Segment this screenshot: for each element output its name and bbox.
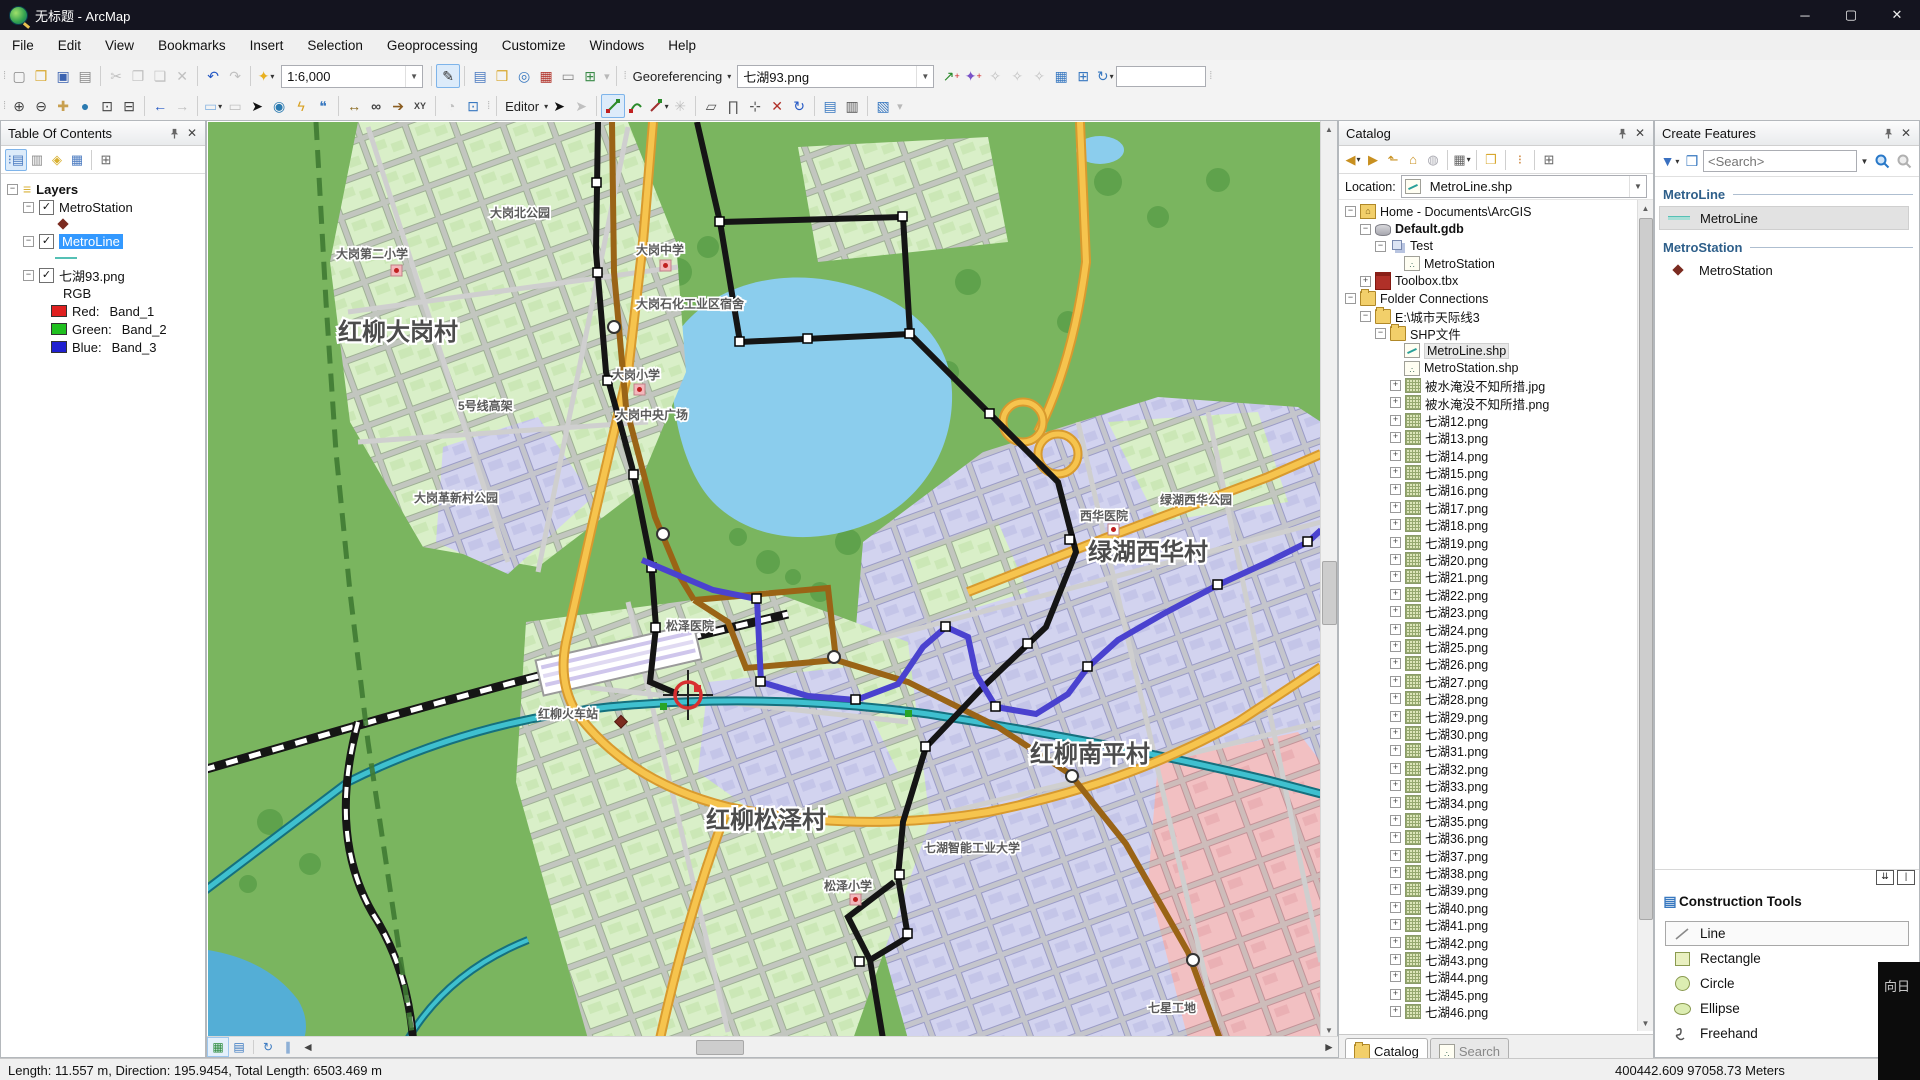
fixed-zoom-out-icon[interactable]: ⊟ xyxy=(118,95,140,117)
add-data-icon[interactable]: ✦▾ xyxy=(255,65,277,87)
go-to-xy-icon[interactable]: XY xyxy=(409,95,431,117)
catalog-item-label[interactable]: 七湖27.png xyxy=(1425,672,1488,691)
catalog-item-label[interactable]: 七湖40.png xyxy=(1425,898,1488,917)
split-tool-icon[interactable]: ✕ xyxy=(766,95,788,117)
table-of-contents-icon[interactable]: ▤ xyxy=(469,65,491,87)
catalog-item-label[interactable]: 七湖30.png xyxy=(1425,724,1488,743)
catalog-row[interactable]: +七湖42.png xyxy=(1339,933,1653,950)
expand-icon[interactable]: + xyxy=(1390,832,1401,843)
catalog-options-icon[interactable]: ⊞ xyxy=(1539,150,1559,170)
construction-tool-line[interactable]: Line xyxy=(1665,921,1909,946)
layer-row-raster[interactable]: − ✓ 七湖93.png xyxy=(23,266,205,284)
expand-icon[interactable]: + xyxy=(1390,797,1401,808)
open-icon[interactable]: ❒ xyxy=(30,65,52,87)
catalog-row[interactable]: +被水淹没不知所措.jpg xyxy=(1339,377,1653,394)
map-horizontal-scrollbar[interactable] xyxy=(318,1039,1319,1055)
catalog-item-label[interactable]: 七湖44.png xyxy=(1425,967,1488,986)
catalog-row[interactable]: MetroStation xyxy=(1339,255,1653,272)
catalog-row[interactable]: −SHP文件 xyxy=(1339,325,1653,342)
georeferencing-menu[interactable]: Georeferencing xyxy=(629,69,727,84)
template-group-header[interactable]: MetroStation xyxy=(1663,240,1913,255)
measure-icon[interactable]: ↔ xyxy=(343,95,365,117)
find-route-icon[interactable]: ➔ xyxy=(387,95,409,117)
expand-icon[interactable]: + xyxy=(1390,624,1401,635)
construction-tool-ellipse[interactable]: Ellipse xyxy=(1665,996,1909,1021)
catalog-row[interactable]: +七湖29.png xyxy=(1339,707,1653,724)
cf-splitter[interactable]: ⇊ | xyxy=(1655,869,1919,885)
trace-tool-icon[interactable]: ✳ xyxy=(669,95,691,117)
catalog-item-label[interactable]: 七湖39.png xyxy=(1425,880,1488,899)
catalog-item-label[interactable]: 七湖33.png xyxy=(1425,776,1488,795)
expand-icon[interactable]: + xyxy=(1390,1006,1401,1017)
catalog-item-label[interactable]: 七湖22.png xyxy=(1425,585,1488,604)
collapse-icon[interactable]: − xyxy=(23,236,34,247)
catalog-row[interactable]: +七湖20.png xyxy=(1339,551,1653,568)
vertical-scroll-thumb[interactable] xyxy=(1322,561,1337,625)
expand-icon[interactable]: + xyxy=(1390,728,1401,739)
catalog-window-icon[interactable]: ❒ xyxy=(491,65,513,87)
layer-row-metrostation[interactable]: − ✓ MetroStation xyxy=(23,198,205,216)
template-item-metroline[interactable]: MetroLine xyxy=(1659,206,1909,230)
collapse-icon[interactable]: − xyxy=(7,184,18,195)
band-row[interactable]: Green: Band_2 xyxy=(51,320,205,338)
expand-icon[interactable]: − xyxy=(1345,206,1356,217)
catalog-row[interactable]: MetroLine.shp xyxy=(1339,342,1653,359)
catalog-row[interactable]: +七湖35.png xyxy=(1339,812,1653,829)
rotation-angle-input[interactable] xyxy=(1116,66,1206,87)
catalog-item-label[interactable]: Folder Connections xyxy=(1380,292,1488,306)
catalog-item-label[interactable]: 被水淹没不知所措.jpg xyxy=(1425,376,1545,395)
expand-icon[interactable]: − xyxy=(1375,328,1386,339)
up-one-level-icon[interactable]: ⬑ xyxy=(1383,150,1403,170)
map-vertical-scrollbar[interactable]: ▲ ▼ xyxy=(1320,121,1337,1038)
catalog-item-label[interactable]: 七湖18.png xyxy=(1425,515,1488,534)
catalog-item-label[interactable]: 七湖43.png xyxy=(1425,950,1488,969)
reshape-feature-icon[interactable]: ∏ xyxy=(722,95,744,117)
catalog-item-label[interactable]: 七湖36.png xyxy=(1425,828,1488,847)
editor-overflow[interactable]: ▾ xyxy=(894,100,905,113)
construction-tool-circle[interactable]: Circle xyxy=(1665,971,1909,996)
expand-icon[interactable]: + xyxy=(1390,502,1401,513)
catalog-row[interactable]: +七湖32.png xyxy=(1339,760,1653,777)
toc-options-icon[interactable]: ⊞ xyxy=(96,150,116,170)
clear-selection-icon[interactable]: ▭ xyxy=(224,95,246,117)
metroline-symbol-row[interactable] xyxy=(55,250,205,266)
catalog-row[interactable]: +七湖12.png xyxy=(1339,412,1653,429)
attributes-icon[interactable]: ▤ xyxy=(819,95,841,117)
edit-annotation-tool-icon[interactable]: ➤ xyxy=(570,95,592,117)
cf-pin-icon[interactable] xyxy=(1879,124,1897,142)
contents-view-icon[interactable]: ▦▾ xyxy=(1452,150,1472,170)
expand-icon[interactable]: + xyxy=(1390,867,1401,878)
menu-edit[interactable]: Edit xyxy=(46,33,93,58)
menu-selection[interactable]: Selection xyxy=(295,33,375,58)
metrostation-symbol-row[interactable] xyxy=(59,216,205,232)
catalog-row[interactable]: +七湖14.png xyxy=(1339,446,1653,463)
time-slider-icon[interactable]: ◔ xyxy=(440,95,462,117)
expand-icon[interactable]: + xyxy=(1390,676,1401,687)
catalog-row[interactable]: −⌂Home - Documents\ArcGIS xyxy=(1339,203,1653,220)
catalog-row[interactable]: +七湖22.png xyxy=(1339,586,1653,603)
catalog-item-label[interactable]: 七湖25.png xyxy=(1425,637,1488,656)
catalog-row[interactable]: +七湖15.png xyxy=(1339,464,1653,481)
catalog-row[interactable]: +七湖36.png xyxy=(1339,829,1653,846)
menu-help[interactable]: Help xyxy=(656,33,708,58)
catalog-item-label[interactable]: MetroLine.shp xyxy=(1424,343,1509,359)
tools-grip[interactable]: ⁞ xyxy=(0,100,8,112)
construction-tool-freehand[interactable]: Freehand xyxy=(1665,1021,1909,1046)
pan-icon[interactable]: ✚ xyxy=(52,95,74,117)
catalog-item-label[interactable]: 七湖26.png xyxy=(1425,654,1488,673)
catalog-item-label[interactable]: 七湖17.png xyxy=(1425,498,1488,517)
expand-icon[interactable]: + xyxy=(1390,589,1401,600)
select-features-icon[interactable]: ▭▾ xyxy=(202,95,224,117)
expand-icon[interactable]: + xyxy=(1390,937,1401,948)
catalog-item-label[interactable]: 七湖41.png xyxy=(1425,915,1488,934)
band-row[interactable]: Red: Band_1 xyxy=(51,302,205,320)
scroll-left-icon[interactable]: ◄ xyxy=(298,1038,318,1056)
delete-link-icon[interactable]: ✧ xyxy=(1028,65,1050,87)
catalog-scroll-thumb[interactable] xyxy=(1639,218,1653,920)
viewer-window-icon[interactable]: ⊡ xyxy=(462,95,484,117)
map-canvas[interactable]: 红柳大岗村 绿湖西华村 红柳南平村 红柳松泽村 大岗北公园 大岗第二小学 大岗中… xyxy=(208,122,1321,1039)
catalog-row[interactable]: +七湖25.png xyxy=(1339,638,1653,655)
georef-overflow[interactable]: ⁞ xyxy=(1206,70,1214,82)
catalog-row[interactable]: +被水淹没不知所措.png xyxy=(1339,394,1653,411)
catalog-item-label[interactable]: 七湖29.png xyxy=(1425,707,1488,726)
layer-label-selected[interactable]: MetroLine xyxy=(59,234,123,249)
home-folder-icon[interactable]: ⌂ xyxy=(1403,150,1423,170)
expand-icon[interactable]: − xyxy=(1360,311,1371,322)
expand-icon[interactable]: + xyxy=(1390,884,1401,895)
map-view[interactable]: 红柳大岗村 绿湖西华村 红柳南平村 红柳松泽村 大岗北公园 大岗第二小学 大岗中… xyxy=(206,120,1338,1058)
expand-icon[interactable]: − xyxy=(1345,293,1356,304)
catalog-item-label[interactable]: 七湖14.png xyxy=(1425,446,1488,465)
location-combo[interactable]: MetroLine.shp ▼ xyxy=(1401,175,1647,198)
forward-icon[interactable]: ▶ xyxy=(1363,150,1383,170)
expand-icon[interactable]: + xyxy=(1390,763,1401,774)
expand-icon[interactable]: + xyxy=(1390,658,1401,669)
collapse-icon[interactable]: − xyxy=(23,270,34,281)
catalog-row[interactable]: +七湖21.png xyxy=(1339,568,1653,585)
expand-icon[interactable]: + xyxy=(1390,606,1401,617)
expand-icon[interactable]: + xyxy=(1390,467,1401,478)
catalog-row[interactable]: +七湖19.png xyxy=(1339,533,1653,550)
catalog-row[interactable]: −E:\城市天际线3 xyxy=(1339,307,1653,324)
catalog-item-label[interactable]: 七湖32.png xyxy=(1425,759,1488,778)
expand-icon[interactable]: + xyxy=(1390,919,1401,930)
line-construction-tool-icon[interactable]: ▾ xyxy=(647,95,669,117)
editor-menu[interactable]: Editor xyxy=(501,99,543,114)
catalog-item-label[interactable]: 七湖19.png xyxy=(1425,533,1488,552)
identify-icon[interactable]: ◉ xyxy=(268,95,290,117)
cut-polygons-icon[interactable]: ⊹ xyxy=(744,95,766,117)
new-document-icon[interactable]: ▢ xyxy=(8,65,30,87)
launch-arccatalog-icon[interactable]: ❒ xyxy=(1481,150,1501,170)
layer-checkbox[interactable]: ✓ xyxy=(39,234,54,249)
menu-geoprocessing[interactable]: Geoprocessing xyxy=(375,33,490,58)
catalog-item-label[interactable]: 七湖34.png xyxy=(1425,793,1488,812)
cut-icon[interactable]: ✂ xyxy=(105,65,127,87)
menu-insert[interactable]: Insert xyxy=(238,33,296,58)
scroll-down-icon[interactable]: ▼ xyxy=(1638,1015,1653,1031)
catalog-item-label[interactable]: 七湖13.png xyxy=(1425,428,1488,447)
construction-tool-rectangle[interactable]: Rectangle xyxy=(1665,946,1909,971)
create-features-icon[interactable]: ▧ xyxy=(872,95,894,117)
maximize-button[interactable]: ▢ xyxy=(1828,0,1874,30)
full-extent-icon[interactable]: ● xyxy=(74,95,96,117)
expand-icon[interactable]: + xyxy=(1390,971,1401,982)
catalog-row[interactable]: +七湖28.png xyxy=(1339,690,1653,707)
catalog-close-icon[interactable]: ✕ xyxy=(1631,124,1649,142)
expand-icon[interactable]: + xyxy=(1390,850,1401,861)
catalog-item-label[interactable]: 七湖35.png xyxy=(1425,811,1488,830)
expand-section-icon[interactable]: ⇊ xyxy=(1876,870,1894,885)
control-point-table-icon[interactable]: ⊞ xyxy=(1072,65,1094,87)
catalog-row[interactable]: +七湖38.png xyxy=(1339,864,1653,881)
catalog-row[interactable]: +七湖31.png xyxy=(1339,742,1653,759)
raster-icon xyxy=(1405,709,1421,724)
catalog-item-label[interactable]: 七湖46.png xyxy=(1425,1002,1488,1021)
catalog-item-label[interactable]: 七湖20.png xyxy=(1425,550,1488,569)
catalog-item-label[interactable]: 被水淹没不知所措.png xyxy=(1425,394,1549,413)
default-gdb-icon[interactable]: ◍ xyxy=(1423,150,1443,170)
list-by-visibility-icon[interactable]: ◈ xyxy=(47,150,67,170)
layer-checkbox[interactable]: ✓ xyxy=(39,200,54,215)
data-view-button[interactable]: ▦ xyxy=(207,1037,229,1057)
catalog-item-label[interactable]: Test xyxy=(1410,239,1433,253)
catalog-row[interactable]: +七湖17.png xyxy=(1339,499,1653,516)
expand-icon[interactable]: + xyxy=(1390,571,1401,582)
expand-icon[interactable]: + xyxy=(1390,519,1401,530)
catalog-row[interactable]: +七湖16.png xyxy=(1339,481,1653,498)
splitter-handle-icon[interactable]: | xyxy=(1897,870,1915,885)
catalog-row[interactable]: +七湖30.png xyxy=(1339,725,1653,742)
expand-icon[interactable]: + xyxy=(1390,780,1401,791)
catalog-item-label[interactable]: 七湖16.png xyxy=(1425,480,1488,499)
georeferencing-layer-combo[interactable]: 七湖93.png ▼ xyxy=(737,65,934,88)
menu-customize[interactable]: Customize xyxy=(490,33,578,58)
collapse-icon[interactable]: − xyxy=(23,202,34,213)
template-item-metrostation[interactable]: MetroStation xyxy=(1659,259,1909,281)
expand-icon[interactable]: + xyxy=(1390,537,1401,548)
organize-templates-icon[interactable]: ❒ xyxy=(1681,150,1703,172)
catalog-item-label[interactable]: 七湖23.png xyxy=(1425,602,1488,621)
zoom-out-icon[interactable]: ⊖ xyxy=(30,95,52,117)
menu-windows[interactable]: Windows xyxy=(578,33,657,58)
minimize-button[interactable]: ─ xyxy=(1782,0,1828,30)
georef-toolbar-grip[interactable]: ⁞ xyxy=(621,70,629,82)
toolbar-grip[interactable]: ⁞ xyxy=(0,70,8,82)
catalog-row[interactable]: +七湖41.png xyxy=(1339,916,1653,933)
map-scale-combo[interactable]: 1:6,000 ▼ xyxy=(281,65,423,88)
search-dropdown-icon[interactable]: ▼ xyxy=(1857,150,1871,172)
template-search-input[interactable] xyxy=(1703,150,1857,172)
catalog-item-label[interactable]: 七湖21.png xyxy=(1425,567,1488,586)
refresh-view-icon[interactable]: ↻ xyxy=(258,1038,278,1056)
horizontal-scroll-thumb[interactable] xyxy=(696,1040,744,1055)
menu-view[interactable]: View xyxy=(93,33,146,58)
layer-checkbox[interactable]: ✓ xyxy=(39,268,54,283)
catalog-item-label[interactable]: SHP文件 xyxy=(1410,324,1461,343)
expand-icon[interactable]: + xyxy=(1390,554,1401,565)
expand-icon[interactable]: + xyxy=(1390,397,1401,408)
catalog-item-label[interactable]: 七湖38.png xyxy=(1425,863,1488,882)
catalog-row[interactable]: +七湖45.png xyxy=(1339,986,1653,1003)
arctoolbox-icon[interactable]: ▦ xyxy=(535,65,557,87)
zoom-to-link-icon[interactable]: ✧ xyxy=(1006,65,1028,87)
delete-icon[interactable]: ✕ xyxy=(171,65,193,87)
html-popup-icon[interactable]: ❝ xyxy=(312,95,334,117)
menu-bookmarks[interactable]: Bookmarks xyxy=(146,33,238,58)
scale-dropdown-arrow[interactable]: ▼ xyxy=(405,66,422,87)
layer-row-metroline[interactable]: − ✓ MetroLine xyxy=(23,232,205,250)
catalog-pin-icon[interactable] xyxy=(1613,124,1631,142)
expand-icon[interactable]: + xyxy=(1390,484,1401,495)
catalog-item-label[interactable]: MetroStation xyxy=(1424,257,1495,271)
tools-overflow[interactable]: ⁞ xyxy=(484,100,492,112)
pause-drawing-icon[interactable]: ∥ xyxy=(278,1038,298,1056)
undo-icon[interactable]: ↶ xyxy=(202,65,224,87)
catalog-item-label[interactable]: 七湖31.png xyxy=(1425,741,1488,760)
template-filter-icon[interactable]: ▼▾ xyxy=(1659,150,1681,172)
toc-close-icon[interactable]: ✕ xyxy=(183,124,201,142)
rotate-tool-icon[interactable]: ↻ xyxy=(788,95,810,117)
close-button[interactable]: ✕ xyxy=(1874,0,1920,30)
print-icon[interactable]: ▤ xyxy=(74,65,96,87)
template-group-header[interactable]: MetroLine xyxy=(1663,187,1913,202)
search-window-icon[interactable]: ◎ xyxy=(513,65,535,87)
list-by-source-icon[interactable]: ▥ xyxy=(27,150,47,170)
scroll-right-icon[interactable]: ► xyxy=(1319,1038,1339,1056)
scroll-up-icon[interactable]: ▲ xyxy=(1638,200,1653,216)
catalog-row[interactable]: +七湖37.png xyxy=(1339,846,1653,863)
select-elements-icon[interactable]: ➤ xyxy=(246,95,268,117)
sketch-properties-icon[interactable]: ▥ xyxy=(841,95,863,117)
catalog-item-label[interactable]: 七湖45.png xyxy=(1425,985,1488,1004)
view-link-table-icon[interactable]: ▦ xyxy=(1050,65,1072,87)
catalog-row[interactable]: −Folder Connections xyxy=(1339,290,1653,307)
catalog-row[interactable]: +七湖43.png xyxy=(1339,951,1653,968)
catalog-item-label[interactable]: 七湖28.png xyxy=(1425,689,1488,708)
catalog-item-label[interactable]: Home - Documents\ArcGIS xyxy=(1380,205,1531,219)
catalog-item-label[interactable]: 七湖37.png xyxy=(1425,846,1488,865)
layer-label[interactable]: MetroStation xyxy=(59,200,133,215)
paste-icon[interactable]: ❏ xyxy=(149,65,171,87)
find-icon[interactable]: ∞ xyxy=(365,95,387,117)
catalog-item-label[interactable]: E:\城市天际线3 xyxy=(1395,307,1480,326)
forward-extent-icon[interactable]: → xyxy=(171,95,193,117)
catalog-row[interactable]: MetroStation.shp xyxy=(1339,360,1653,377)
modelbuilder-icon[interactable]: ⊞ xyxy=(579,65,601,87)
expand-icon[interactable]: + xyxy=(1360,276,1371,287)
search-clear-icon[interactable] xyxy=(1893,150,1915,172)
expand-icon[interactable]: + xyxy=(1390,815,1401,826)
cf-close-icon[interactable]: ✕ xyxy=(1897,124,1915,142)
expand-icon[interactable]: − xyxy=(1360,224,1371,235)
catalog-row[interactable]: +七湖27.png xyxy=(1339,673,1653,690)
select-link-icon[interactable]: ✧ xyxy=(984,65,1006,87)
zoom-in-icon[interactable]: ⊕ xyxy=(8,95,30,117)
catalog-item-label[interactable]: 七湖15.png xyxy=(1425,463,1488,482)
layers-group-row[interactable]: − ≡ Layers xyxy=(7,180,205,198)
rotate-image-icon[interactable]: ↻▾ xyxy=(1094,65,1116,87)
expand-icon[interactable]: + xyxy=(1390,641,1401,652)
catalog-row[interactable]: +七湖33.png xyxy=(1339,777,1653,794)
search-go-icon[interactable] xyxy=(1871,150,1893,172)
straight-segment-tool-icon[interactable] xyxy=(601,94,625,118)
endpoint-arc-tool-icon[interactable] xyxy=(625,95,647,117)
catalog-row[interactable]: +七湖18.png xyxy=(1339,516,1653,533)
expand-icon[interactable]: + xyxy=(1390,432,1401,443)
layer-label[interactable]: 七湖93.png xyxy=(59,266,125,285)
expand-icon[interactable]: + xyxy=(1390,693,1401,704)
expand-icon[interactable]: + xyxy=(1390,954,1401,965)
catalog-item-label[interactable]: Default.gdb xyxy=(1395,222,1464,236)
expand-icon[interactable]: + xyxy=(1390,711,1401,722)
save-icon[interactable]: ▣ xyxy=(52,65,74,87)
auto-registration-icon[interactable]: ✦+ xyxy=(962,65,984,87)
catalog-item-label[interactable]: 七湖42.png xyxy=(1425,933,1488,952)
expand-icon[interactable]: + xyxy=(1390,450,1401,461)
edit-vertices-icon[interactable]: ▱ xyxy=(700,95,722,117)
catalog-row[interactable]: +Toolbox.tbx xyxy=(1339,273,1653,290)
expand-icon[interactable]: + xyxy=(1390,415,1401,426)
redo-icon[interactable]: ↷ xyxy=(224,65,246,87)
band-row[interactable]: Blue: Band_3 xyxy=(51,338,205,356)
add-control-points-icon[interactable]: ↗+ xyxy=(940,65,962,87)
scroll-up-icon[interactable]: ▲ xyxy=(1321,121,1337,137)
expand-icon[interactable]: + xyxy=(1390,380,1401,391)
copy-icon[interactable]: ❐ xyxy=(127,65,149,87)
catalog-row[interactable]: −Test xyxy=(1339,238,1653,255)
python-window-icon[interactable]: ▭ xyxy=(557,65,579,87)
catalog-row[interactable]: −Default.gdb xyxy=(1339,220,1653,237)
catalog-item-label[interactable]: Toolbox.tbx xyxy=(1395,274,1458,288)
list-by-drawing-order-icon[interactable]: ⁝▤ xyxy=(5,149,27,171)
catalog-row[interactable]: +七湖34.png xyxy=(1339,794,1653,811)
catalog-item-label[interactable]: 七湖12.png xyxy=(1425,411,1488,430)
expand-icon[interactable]: − xyxy=(1375,241,1386,252)
catalog-row[interactable]: +七湖39.png xyxy=(1339,881,1653,898)
catalog-row[interactable]: +七湖23.png xyxy=(1339,603,1653,620)
expand-icon[interactable]: + xyxy=(1390,902,1401,913)
layout-view-button[interactable]: ▤ xyxy=(229,1038,249,1056)
editor-toolbar-toggle-icon[interactable]: ✎ xyxy=(436,64,460,88)
catalog-row[interactable]: +七湖46.png xyxy=(1339,1003,1653,1020)
back-icon[interactable]: ◀▾ xyxy=(1343,150,1363,170)
toolbar-overflow[interactable]: ▾ xyxy=(601,70,612,83)
catalog-item-label[interactable]: MetroStation.shp xyxy=(1424,361,1519,375)
toggle-tree-icon[interactable]: ⁝ xyxy=(1510,150,1530,170)
catalog-row[interactable]: +七湖13.png xyxy=(1339,429,1653,446)
list-by-selection-icon[interactable]: ▦ xyxy=(67,150,87,170)
expand-icon[interactable]: + xyxy=(1390,745,1401,756)
catalog-row[interactable]: +七湖44.png xyxy=(1339,968,1653,985)
hyperlink-icon[interactable]: ϟ xyxy=(290,95,312,117)
menu-file[interactable]: File xyxy=(0,33,46,58)
catalog-row[interactable]: +七湖24.png xyxy=(1339,620,1653,637)
toc-pin-icon[interactable] xyxy=(165,124,183,142)
fixed-zoom-in-icon[interactable]: ⊡ xyxy=(96,95,118,117)
back-extent-icon[interactable]: ← xyxy=(149,95,171,117)
edit-tool-icon[interactable]: ➤ xyxy=(548,95,570,117)
catalog-item-label[interactable]: 七湖24.png xyxy=(1425,620,1488,639)
expand-icon[interactable]: + xyxy=(1390,989,1401,1000)
catalog-row[interactable]: +七湖40.png xyxy=(1339,899,1653,916)
catalog-row[interactable]: +七湖26.png xyxy=(1339,655,1653,672)
catalog-scrollbar[interactable]: ▲ ▼ xyxy=(1637,200,1653,1031)
